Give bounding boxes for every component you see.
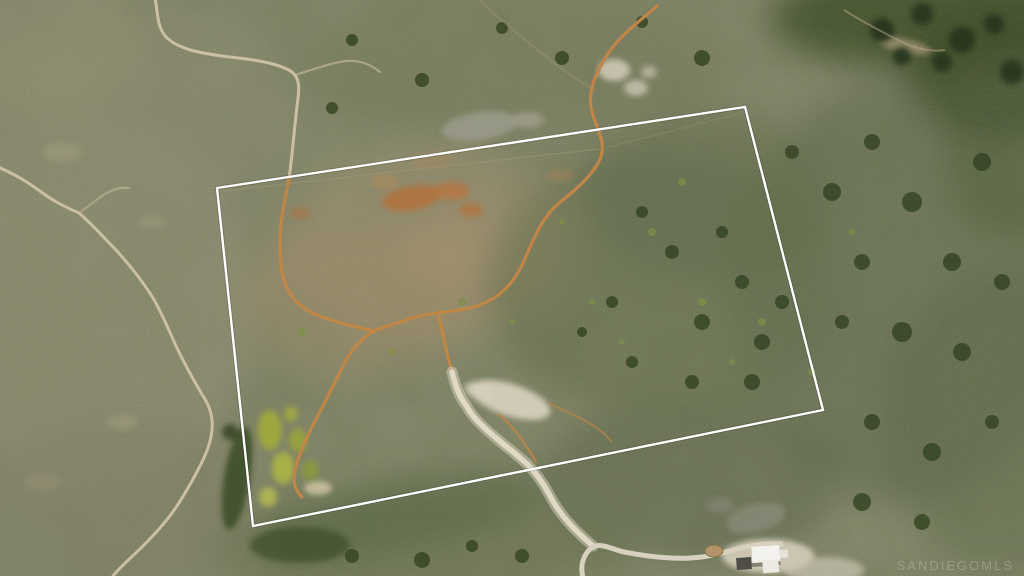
dirt-patch [434, 182, 470, 200]
tree-clump [893, 47, 911, 65]
dirt-patch [546, 168, 574, 182]
tree-clump [911, 3, 933, 25]
tree-clump [345, 549, 359, 563]
aerial-photo-canvas: SANDIEGOMLS [0, 0, 1024, 576]
tree-clump [984, 14, 1004, 34]
tree-clump [606, 296, 618, 308]
dirt-patch [138, 215, 166, 229]
bush [509, 319, 515, 325]
aerial-photo: SANDIEGOMLS [0, 0, 1024, 576]
willow-patch [258, 410, 282, 450]
tree-clump [326, 102, 338, 114]
tree-clump [694, 50, 710, 66]
willow-patch [259, 487, 277, 507]
tree-clump [716, 226, 728, 238]
rock-patch [641, 66, 657, 78]
tree-clump [864, 134, 880, 150]
rock-patch [512, 112, 544, 128]
tree-clump [415, 73, 429, 87]
tree-clump [744, 374, 760, 390]
bush [849, 229, 855, 235]
tree-clump [923, 443, 941, 461]
tree-clump [853, 493, 871, 511]
tree-clump [949, 27, 975, 53]
dirt-patch [24, 473, 60, 491]
bush [389, 349, 395, 355]
bush [619, 339, 625, 345]
tree-clump [953, 343, 971, 361]
rock-patch [706, 497, 734, 513]
tree-clump [902, 192, 922, 212]
bush [648, 228, 656, 236]
dirt-patch [290, 208, 310, 218]
tree-clump [555, 51, 569, 65]
bush [559, 219, 565, 225]
tree-clump [694, 314, 710, 330]
rock-patch [624, 80, 648, 96]
tree-clump [626, 356, 638, 368]
tree-clump [735, 275, 749, 289]
tree-clump [754, 334, 770, 350]
tree-clump [250, 527, 350, 563]
willow-patch [272, 452, 294, 484]
dirt-patch [304, 481, 332, 495]
tree-clump [1000, 60, 1024, 84]
tree-clump [823, 183, 841, 201]
bush [758, 318, 766, 326]
tree-clump [466, 540, 478, 552]
tree-clump [222, 424, 238, 440]
bush [698, 298, 706, 306]
building-wing [762, 559, 779, 573]
tree-clump [914, 514, 930, 530]
round-feature [705, 545, 723, 557]
watermark-text: SANDIEGOMLS [897, 558, 1014, 573]
tree-clump [835, 315, 849, 329]
tree-clump [685, 375, 699, 389]
bush [458, 298, 466, 306]
tree-clump [994, 274, 1010, 290]
tree-clump [414, 552, 430, 568]
tree-clump [346, 34, 358, 46]
bush [678, 178, 686, 186]
bush [729, 359, 735, 365]
tree-clump [785, 145, 799, 159]
willow-patch [302, 460, 318, 480]
tree-clump [864, 414, 880, 430]
tree-clump [577, 327, 587, 337]
tree-clump [973, 153, 991, 171]
dirt-patch [42, 142, 82, 162]
driveway [736, 557, 752, 570]
tree-clump [665, 245, 679, 259]
tree-clump [515, 549, 529, 563]
tree-clump [775, 295, 789, 309]
willow-patch [284, 406, 298, 422]
grain-texture-light [0, 0, 1024, 576]
dirt-patch [371, 175, 399, 189]
dirt-patch [106, 414, 138, 430]
tree-clump [985, 415, 999, 429]
building-annex [780, 549, 789, 558]
tree-clump [854, 254, 870, 270]
dirt-patch [459, 203, 483, 217]
tree-clump [892, 322, 912, 342]
tree-clump [636, 206, 648, 218]
tree-clump [870, 18, 894, 42]
tree-clump [943, 253, 961, 271]
bush [589, 299, 595, 305]
tree-clump [932, 52, 952, 72]
bush [298, 328, 306, 336]
